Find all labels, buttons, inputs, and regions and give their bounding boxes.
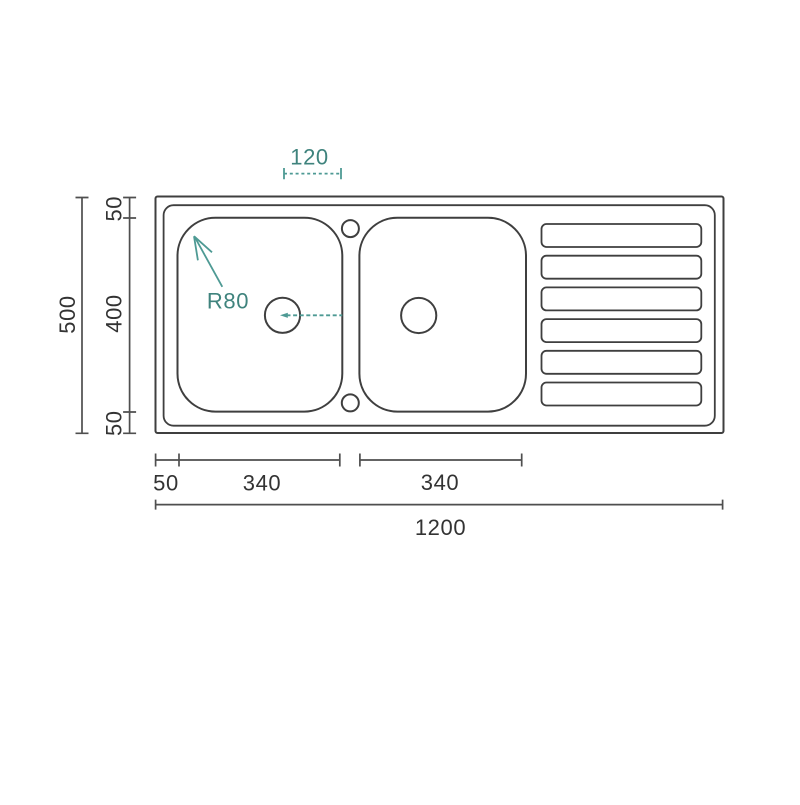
svg-text:50: 50 xyxy=(153,471,179,496)
svg-text:340: 340 xyxy=(243,471,282,496)
svg-text:120: 120 xyxy=(290,145,329,170)
svg-text:50: 50 xyxy=(102,196,127,222)
svg-text:340: 340 xyxy=(421,470,460,495)
svg-text:R80: R80 xyxy=(207,289,249,314)
svg-text:400: 400 xyxy=(102,294,127,333)
svg-text:500: 500 xyxy=(55,295,80,334)
svg-text:50: 50 xyxy=(102,410,127,436)
svg-text:1200: 1200 xyxy=(415,515,466,540)
